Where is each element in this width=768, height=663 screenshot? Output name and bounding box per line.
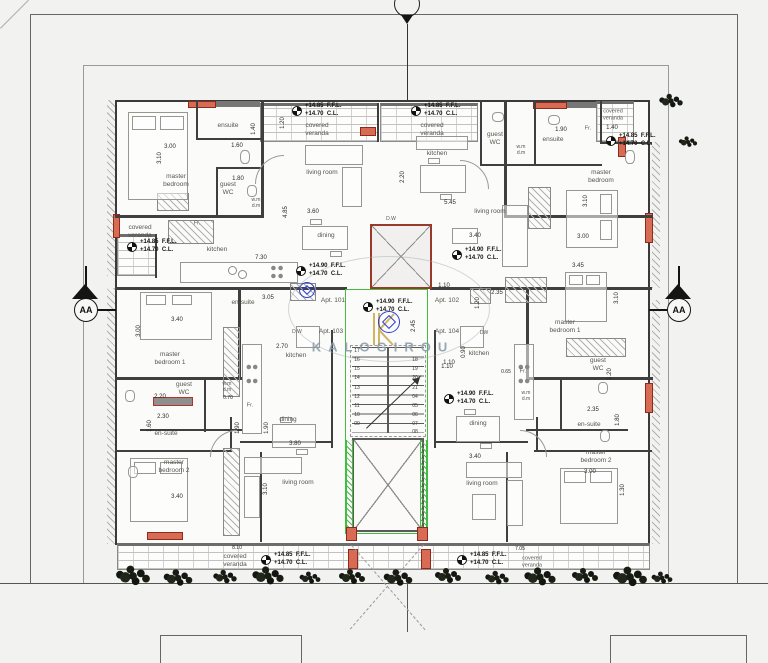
dimension-label: 4.85: [283, 206, 289, 218]
room-label: en-suite: [231, 299, 254, 307]
dimension-label: 3.40: [469, 454, 481, 460]
dimension-label: 2.70: [276, 344, 288, 350]
sofa: [507, 480, 523, 526]
level-marker-icon: [411, 106, 421, 116]
stair-step-number: 12: [354, 394, 360, 400]
toilet: [128, 466, 138, 478]
room-label: Fr.: [520, 369, 526, 376]
red-wall-accent: [533, 102, 567, 109]
boundary-line-left: [30, 14, 31, 583]
stair-step-number: 17: [354, 348, 360, 354]
stair-step-number: 09: [354, 421, 360, 427]
room-label: covered veranda: [420, 122, 444, 138]
cl-label: +14.70 C.L.: [470, 560, 507, 568]
dimension-label: 3.05: [262, 295, 274, 301]
toilet: [247, 185, 257, 197]
room-label: living room: [306, 169, 337, 177]
dimension-label: 1.10: [441, 364, 453, 370]
wall-segment: [216, 167, 263, 169]
dimension-label: 1.30: [620, 484, 626, 496]
chair: [428, 158, 440, 164]
lift-shaft: [352, 438, 424, 532]
wall-segment: [534, 100, 536, 166]
axis-marker-top-arrow: [401, 15, 413, 24]
stair-step-number: 18: [412, 357, 418, 363]
room-label: covered veranda: [223, 553, 247, 569]
wall-segment: [204, 380, 206, 432]
dimension-label: 1.90: [264, 422, 270, 434]
axis-line-top: [407, 24, 408, 100]
dimension-label: 2.35: [491, 290, 503, 296]
room-label: guest WC: [176, 381, 192, 397]
level-marker-icon: [261, 555, 271, 565]
kitchen-hob: [268, 264, 286, 280]
dimension-label: 2.35: [587, 407, 599, 413]
closet-hatch: [505, 277, 547, 303]
boundary-line-top: [30, 14, 738, 15]
cl-label: +14.70 C.L.: [376, 307, 413, 315]
ffl-label: +14.85 F.F.L.: [305, 103, 342, 111]
closet-hatch: [223, 448, 240, 536]
section-arrow-right: [665, 284, 691, 299]
inner-boundary-right: [668, 65, 669, 583]
dimension-label: 3.40: [469, 233, 481, 239]
room-label: living room: [474, 208, 505, 216]
room-label: en-suite: [154, 430, 177, 438]
room-label: kitchen: [207, 246, 228, 254]
stair-step-number: 20: [412, 375, 418, 381]
toilet: [625, 150, 635, 164]
level-marker-icon: [363, 302, 373, 312]
chair: [464, 409, 476, 415]
room-label: master bedroom 1: [549, 319, 580, 335]
ffl-label: +14.85 F.F.L.: [470, 552, 507, 560]
kitchen-counter: [242, 344, 262, 434]
dimension-label: 2.30: [157, 414, 169, 420]
section-tick-left: [98, 309, 116, 311]
kitchen-sink: [238, 270, 247, 279]
dining-table: [420, 165, 466, 193]
ffl-label: +14.85 F.F.L.: [140, 239, 177, 247]
room-label: dining: [317, 232, 334, 240]
ffl-label: +14.90 F.F.L.: [465, 247, 502, 255]
dimension-label: 3.00: [584, 469, 596, 475]
stair-step-number: 07: [412, 421, 418, 427]
stair-step-number: 15: [354, 366, 360, 372]
wall-segment: [480, 100, 482, 166]
wall-segment: [560, 380, 562, 431]
cl-label: +14.70 C.L.: [140, 247, 177, 255]
room-label: master bedroom 2: [580, 449, 611, 465]
dimension-label: 3.60: [307, 209, 319, 215]
wall-hatch: [652, 300, 660, 544]
inner-boundary-top: [83, 65, 669, 66]
room-label: covered veranda: [603, 108, 623, 121]
dimension-label: 3.10: [583, 195, 589, 207]
room-label: kitchen: [286, 352, 307, 360]
wall-hatch: [107, 288, 115, 544]
section-marker-right-label: AA: [673, 305, 686, 315]
dimension-label: 1.80: [232, 176, 244, 182]
toilet: [600, 430, 610, 442]
stair-step-number: 11: [354, 403, 359, 409]
dimension-label: 1.60: [231, 143, 243, 149]
ffl-label: +14.85 F.F.L.: [274, 552, 311, 560]
chair: [480, 443, 492, 449]
wall-segment: [377, 103, 379, 142]
stair-step-number: 10: [354, 412, 360, 418]
section-line-left: [85, 266, 87, 286]
cl-label: +14.70 C.L.: [465, 255, 502, 263]
room-label: DW: [480, 330, 488, 336]
dimension-label: 3.80: [289, 441, 301, 447]
dimension-label: 1.40: [251, 123, 257, 135]
lift-corner-column: [346, 527, 357, 541]
dimension-label: 3.00: [577, 234, 589, 240]
dimension-label: 3.00: [164, 144, 176, 150]
chair: [310, 219, 322, 225]
toilet: [492, 112, 504, 122]
toilet: [548, 115, 560, 125]
wall-segment: [261, 100, 264, 217]
level-marker-icon: [292, 106, 302, 116]
stair-step-number: 14: [354, 375, 360, 381]
room-label: guest WC: [590, 357, 606, 373]
section-marker-left-label: AA: [80, 305, 93, 315]
section-line-right: [678, 266, 680, 286]
room-label: Apt. 103: [319, 328, 343, 336]
wall-fill: [216, 101, 260, 107]
cl-label: +14.70 C.L.: [305, 111, 342, 119]
site-step-left: [160, 635, 302, 663]
level-marker-icon: [444, 394, 454, 404]
wall-segment: [600, 100, 602, 144]
room-label: Apt. 104: [435, 328, 459, 336]
sofa: [244, 457, 302, 474]
dimension-label: 1.20: [607, 368, 613, 380]
room-label: master bedroom 1: [154, 351, 185, 367]
dimension-label: 2.45: [411, 320, 417, 332]
room-label: master bedroom: [163, 173, 189, 189]
watermark-text: KALOGIROU: [312, 340, 454, 355]
sofa: [342, 167, 362, 207]
sofa: [502, 205, 528, 267]
dimension-label: 3.45: [572, 263, 584, 269]
room-label: covered veranda: [128, 224, 152, 240]
sofa: [305, 145, 363, 165]
room-label: dining: [469, 420, 486, 428]
room-label: ensuite: [218, 122, 239, 130]
boundary-line-right: [737, 14, 738, 583]
room-label: D.W: [292, 329, 302, 335]
dimension-label: 1.60: [147, 420, 153, 432]
dimension-label: 0.70: [223, 395, 233, 401]
level-marker-icon: [452, 250, 462, 260]
architect-stamp-small: [299, 282, 315, 298]
pillow: [600, 220, 612, 240]
lift-wall-hatch: [346, 440, 353, 532]
room-label: master bedroom 2: [158, 459, 189, 475]
stair-step-number: 04: [412, 394, 418, 400]
corner-mark: [0, 0, 29, 29]
site-step-right: [610, 635, 747, 663]
lift-corner-column: [417, 527, 428, 541]
ffl-label: +14.85 F.F.L.: [619, 133, 656, 141]
dimension-label: 1.10: [438, 283, 450, 289]
dimension-label: 1.40: [606, 125, 618, 131]
red-wall-accent: [147, 532, 183, 540]
stair-step-number: 16: [354, 357, 360, 363]
dimension-label: 5.45: [444, 200, 456, 206]
section-marker-left: AA: [74, 298, 98, 322]
kitchen-sink: [228, 266, 237, 275]
wall-segment: [115, 215, 264, 218]
dimension-label: 1.20: [475, 297, 481, 309]
room-label: master bedroom: [588, 169, 614, 185]
room-label: living room: [282, 479, 313, 487]
toilet: [598, 382, 608, 394]
wall-segment: [526, 377, 653, 380]
lift-wall-hatch: [420, 440, 427, 532]
section-marker-right: AA: [667, 298, 691, 322]
room-label: Apt. 102: [435, 297, 459, 305]
dimension-label: 3.10: [614, 292, 620, 304]
dimension-label: 7.30: [255, 255, 267, 261]
wall-segment: [480, 164, 536, 166]
section-arrow-left: [72, 284, 98, 299]
level-marker-icon: [457, 555, 467, 565]
pillow: [586, 275, 600, 285]
chair: [296, 449, 308, 455]
sofa: [466, 462, 522, 478]
inner-boundary-left: [83, 65, 84, 583]
dimension-label: 3.40: [171, 494, 183, 500]
pillow: [160, 116, 184, 130]
ffl-label: +14.90 F.F.L.: [376, 299, 413, 307]
dimension-label: 2.20: [154, 394, 166, 400]
stair-step-number: 05: [412, 403, 418, 409]
dimension-label: 0.90: [461, 346, 467, 358]
dimension-label: 1.20: [280, 117, 286, 129]
red-wall-accent: [188, 101, 216, 108]
room-label: Fr.: [194, 221, 200, 228]
dimension-label: 3.00: [136, 325, 142, 337]
room-label: covered veranda: [522, 555, 542, 568]
dimension-label: 2.20: [400, 171, 406, 183]
stair-step-number: 08: [412, 429, 418, 435]
room-label: covered veranda: [305, 122, 329, 138]
dimension-label: 3.10: [263, 483, 269, 495]
pillow: [146, 295, 166, 305]
room-label: w.m d.m: [223, 381, 232, 393]
cl-label: +14.70 C.L.: [309, 271, 346, 279]
red-wall-accent: [360, 127, 376, 136]
room-label: dining: [279, 416, 296, 424]
dimension-label: 7.05: [515, 546, 525, 552]
wall-segment: [216, 167, 218, 217]
coffee-table: [472, 494, 496, 520]
room-label: guest WC: [487, 131, 503, 147]
pillow: [600, 194, 612, 214]
wall-segment: [536, 164, 602, 166]
stair-step-number: 19: [412, 366, 418, 372]
wall-fill: [567, 102, 597, 108]
level-marker-icon: [127, 242, 137, 252]
ffl-label: +14.85 F.F.L.: [424, 103, 461, 111]
room-label: Apt. 101: [321, 297, 345, 305]
closet-hatch: [528, 187, 551, 229]
section-tick-right: [649, 309, 667, 311]
wall-segment: [196, 100, 198, 140]
dimension-label: 1.80: [615, 414, 621, 426]
pillow: [564, 471, 586, 483]
dimension-label: 0.65: [501, 369, 511, 375]
room-label: ensuite: [543, 136, 564, 144]
toilet: [125, 390, 135, 402]
level-marker-icon: [296, 266, 306, 276]
dimension-label: 1.90: [235, 422, 241, 434]
cl-label: +14.70 C.L.: [274, 560, 311, 568]
wall-segment: [196, 138, 263, 140]
ffl-label: +14.90 F.F.L.: [309, 263, 346, 271]
red-wall-accent: [645, 383, 653, 413]
room-label: Fr.: [585, 126, 591, 133]
lift-corner-column: [421, 549, 431, 569]
pillow: [132, 116, 156, 130]
closet-hatch: [566, 338, 626, 357]
cl-label: +14.70 C.L.: [619, 141, 656, 149]
stair-step-number: 06: [412, 412, 418, 418]
dimension-label: 3.40: [171, 317, 183, 323]
wall-hatch: [652, 142, 660, 288]
toilet: [240, 150, 250, 164]
room-label: w.m d.m: [517, 144, 526, 156]
room-label: guest WC: [220, 181, 236, 197]
stair-step-number: 13: [354, 385, 360, 391]
kitchen-hob: [244, 360, 260, 388]
room-label: living room: [466, 480, 497, 488]
pillow: [172, 295, 192, 305]
ffl-label: +14.90 F.F.L.: [457, 391, 494, 399]
veranda-bottom: [117, 543, 650, 570]
room-label: w.m d.m: [252, 197, 261, 209]
room-label: D.W: [386, 216, 396, 222]
dimension-label: 8.10: [232, 545, 242, 551]
room-label: en-suite: [577, 421, 600, 429]
cl-label: +14.70 C.L.: [457, 399, 494, 407]
dimension-label: 1.90: [555, 127, 567, 133]
room-label: Fr.: [247, 403, 253, 410]
room-label: w.m d.m: [522, 390, 531, 402]
cl-label: +14.70 C.L.: [424, 111, 461, 119]
stair-step-number: 21: [412, 385, 418, 391]
chair: [330, 251, 342, 257]
dimension-label: 3.10: [157, 152, 163, 164]
wall-segment: [504, 100, 507, 217]
room-label: kitchen: [469, 350, 490, 358]
level-marker-icon: [606, 136, 616, 146]
kitchen-counter: [416, 136, 468, 150]
sofa: [244, 476, 260, 518]
floor-plan-canvas: AA AA KALOGIROU ensuitemaster bedroomgue…: [0, 0, 768, 663]
room-label: kitchen: [427, 150, 448, 158]
pillow: [569, 275, 583, 285]
wall-hatch: [107, 100, 115, 276]
wall-segment: [526, 429, 628, 431]
